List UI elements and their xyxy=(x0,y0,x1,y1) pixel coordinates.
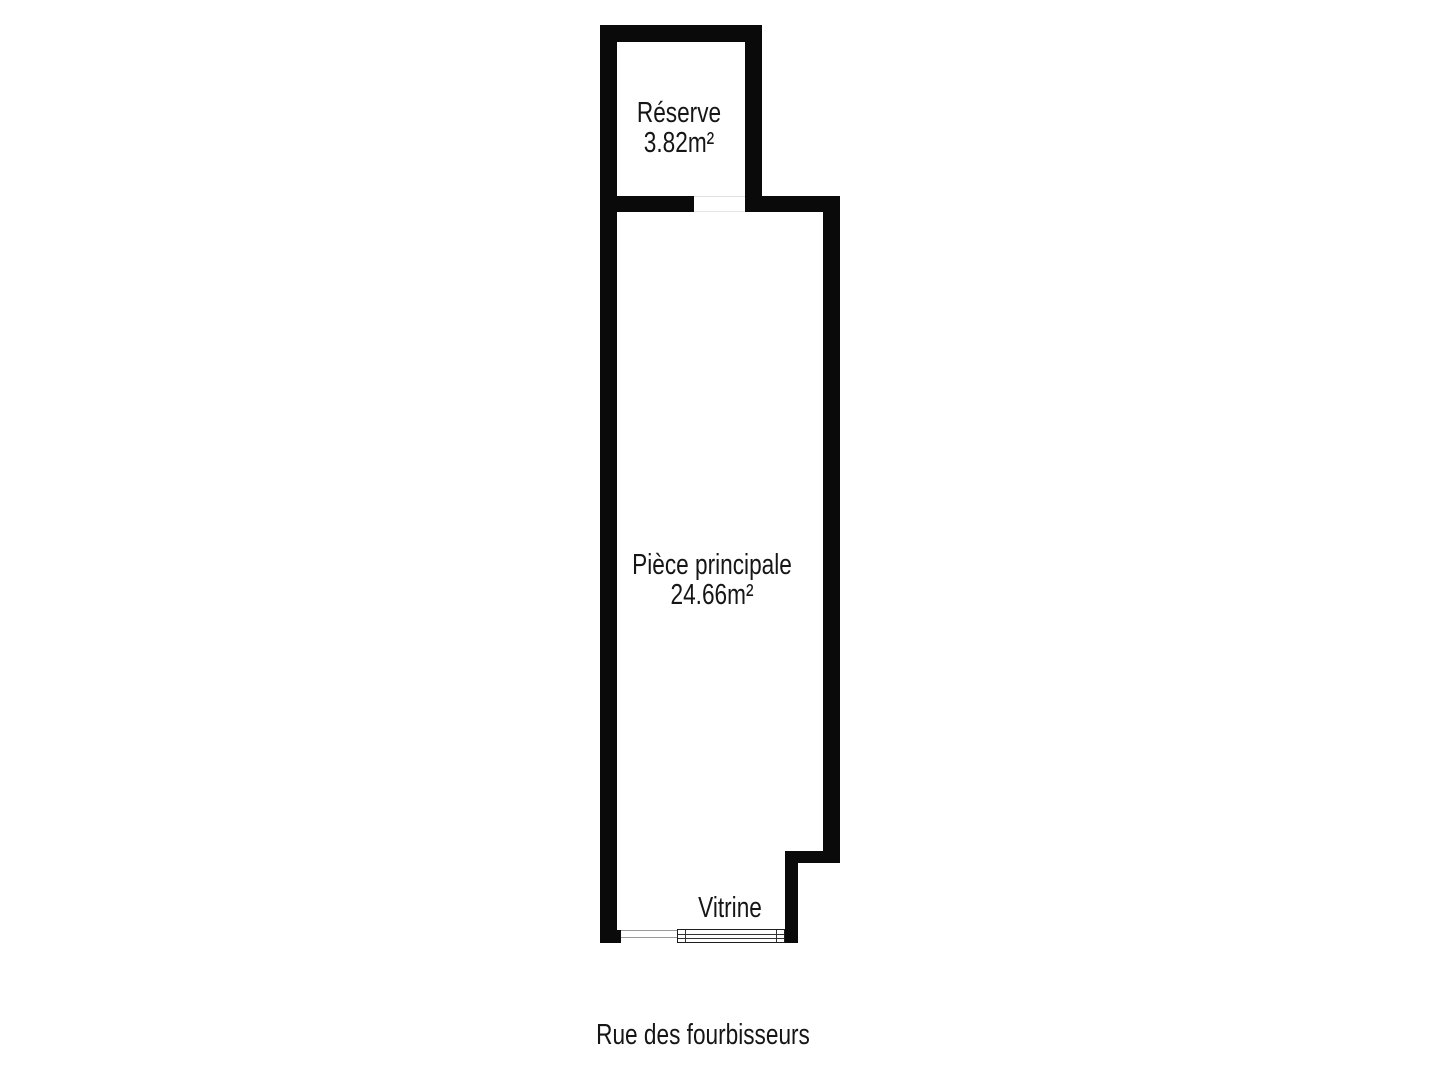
reserve-room-label: Réserve 3.82m² xyxy=(571,98,788,158)
wall-main-right xyxy=(823,196,840,863)
main-room-label: Pièce principale 24.66m² xyxy=(603,550,821,610)
wall-divider-left xyxy=(600,196,694,212)
vitrine-window-icon xyxy=(677,929,785,943)
floor-plan: Réserve 3.82m² Pièce principale 24.66m² … xyxy=(0,0,1440,1080)
wall-reserve-top xyxy=(600,25,762,42)
main-room-name: Pièce principale xyxy=(603,550,821,580)
wall-left xyxy=(600,25,617,943)
street-label: Rue des fourbisseurs xyxy=(586,1020,820,1050)
window-glass-line-top xyxy=(678,934,784,935)
window-glass-line-bottom xyxy=(678,938,784,939)
main-room-area: 24.66m² xyxy=(603,580,821,610)
reserve-door-opening xyxy=(694,196,745,212)
wall-bottom-left-stub xyxy=(600,930,621,943)
window-endcap-right xyxy=(776,930,777,942)
reserve-room-area: 3.82m² xyxy=(571,128,788,158)
window-endcap-left xyxy=(685,930,686,942)
vitrine-label: Vitrine xyxy=(652,893,808,923)
entrance-opening xyxy=(621,930,677,938)
reserve-room-name: Réserve xyxy=(571,98,788,128)
